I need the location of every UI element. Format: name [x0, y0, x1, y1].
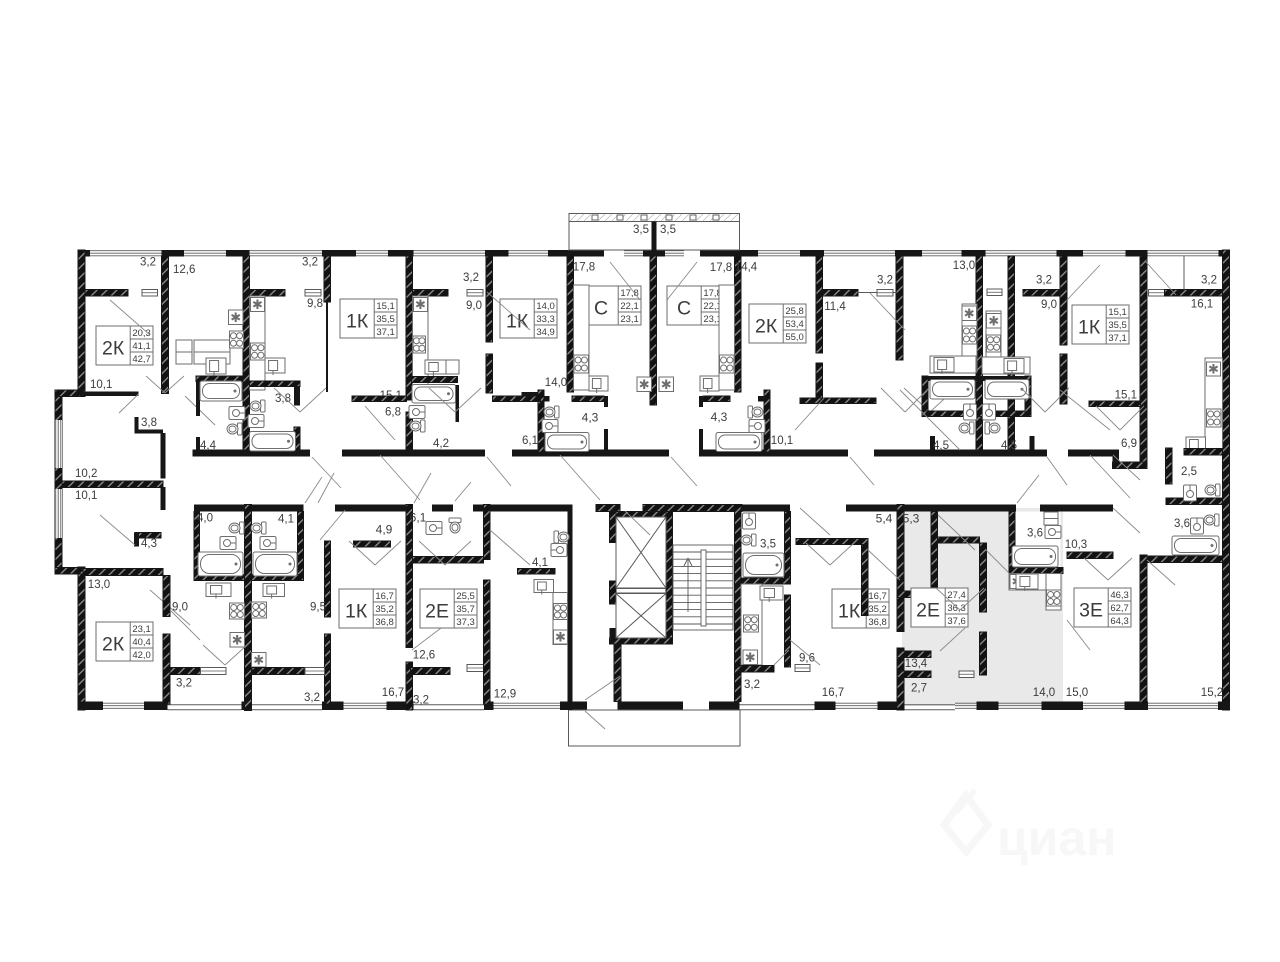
svg-text:25,5: 25,5 — [456, 591, 475, 602]
svg-text:✱: ✱ — [964, 306, 975, 321]
svg-text:3,2: 3,2 — [302, 257, 318, 269]
svg-text:✱: ✱ — [555, 630, 566, 645]
svg-text:1К: 1К — [506, 311, 529, 333]
svg-text:2,5: 2,5 — [1181, 466, 1197, 478]
svg-text:55,0: 55,0 — [785, 332, 804, 343]
svg-text:25,8: 25,8 — [785, 306, 804, 317]
svg-text:2К: 2К — [102, 338, 125, 360]
svg-text:2К: 2К — [102, 634, 125, 656]
svg-text:27,4: 27,4 — [947, 590, 966, 601]
svg-text:3,6: 3,6 — [1027, 528, 1043, 540]
svg-text:✱: ✱ — [253, 652, 264, 667]
svg-text:3,2: 3,2 — [744, 679, 760, 691]
svg-text:3,8: 3,8 — [275, 393, 291, 405]
svg-text:✱: ✱ — [661, 377, 672, 392]
svg-text:3,8: 3,8 — [141, 417, 157, 429]
svg-text:10,1: 10,1 — [771, 435, 793, 447]
svg-text:4,2: 4,2 — [433, 438, 449, 450]
svg-text:✱: ✱ — [639, 377, 650, 392]
svg-text:14,4: 14,4 — [735, 262, 758, 274]
svg-text:16,1: 16,1 — [1191, 299, 1213, 311]
svg-text:3,2: 3,2 — [1201, 275, 1217, 287]
svg-text:2К: 2К — [755, 316, 778, 338]
svg-text:42,0: 42,0 — [132, 650, 151, 661]
svg-text:✱: ✱ — [1208, 362, 1219, 377]
svg-text:34,9: 34,9 — [536, 327, 555, 338]
svg-text:17,8: 17,8 — [710, 262, 732, 274]
svg-text:9,0: 9,0 — [1041, 299, 1057, 311]
svg-text:3,2: 3,2 — [413, 695, 429, 707]
svg-text:С: С — [594, 298, 608, 320]
svg-text:✱: ✱ — [252, 297, 263, 312]
svg-text:62,7: 62,7 — [1110, 603, 1129, 614]
svg-text:✱: ✱ — [232, 632, 243, 647]
svg-text:16,7: 16,7 — [822, 687, 844, 699]
svg-text:5,4: 5,4 — [876, 512, 893, 526]
svg-text:42,7: 42,7 — [132, 354, 151, 365]
svg-text:17,8: 17,8 — [573, 262, 595, 274]
svg-text:35,7: 35,7 — [456, 604, 475, 615]
svg-text:12,6: 12,6 — [413, 650, 435, 662]
svg-text:С: С — [677, 298, 691, 320]
svg-text:6,1: 6,1 — [410, 511, 427, 525]
svg-text:37,6: 37,6 — [947, 616, 966, 627]
svg-text:3,6: 3,6 — [1174, 518, 1190, 530]
svg-text:3,2: 3,2 — [176, 678, 192, 690]
svg-text:16,7: 16,7 — [868, 591, 887, 602]
svg-text:4,3: 4,3 — [141, 538, 157, 550]
svg-text:64,3: 64,3 — [1110, 616, 1129, 627]
svg-text:41,1: 41,1 — [132, 341, 151, 352]
svg-text:46,3: 46,3 — [1110, 590, 1129, 601]
svg-text:5,3: 5,3 — [903, 512, 920, 526]
svg-text:4,5: 4,5 — [933, 440, 949, 452]
svg-text:3Е: 3Е — [1079, 600, 1103, 622]
svg-text:14,0: 14,0 — [545, 377, 567, 389]
svg-text:35,2: 35,2 — [375, 604, 394, 615]
svg-text:15,1: 15,1 — [376, 301, 395, 312]
svg-text:4,3: 4,3 — [582, 411, 599, 425]
svg-text:53,4: 53,4 — [785, 319, 804, 330]
svg-text:✱: ✱ — [988, 313, 999, 328]
svg-text:37,1: 37,1 — [1108, 333, 1127, 344]
svg-text:10,3: 10,3 — [1065, 539, 1087, 551]
svg-text:16,7: 16,7 — [382, 687, 404, 699]
svg-text:6,8: 6,8 — [385, 407, 401, 419]
svg-text:33,3: 33,3 — [536, 314, 555, 325]
svg-text:1К: 1К — [1078, 317, 1101, 339]
svg-text:3,5: 3,5 — [660, 224, 676, 236]
svg-text:циан: циан — [997, 810, 1116, 866]
svg-text:13,0: 13,0 — [88, 579, 110, 591]
svg-text:4,3: 4,3 — [711, 410, 728, 424]
svg-text:15,2: 15,2 — [1201, 687, 1223, 699]
svg-text:13,4: 13,4 — [905, 658, 928, 670]
svg-text:15,1: 15,1 — [1115, 390, 1137, 402]
svg-text:4,1: 4,1 — [278, 514, 294, 526]
svg-text:35,5: 35,5 — [1108, 320, 1127, 331]
svg-text:2Е: 2Е — [425, 601, 449, 623]
svg-text:✱: ✱ — [745, 650, 756, 665]
svg-text:✱: ✱ — [415, 297, 426, 312]
svg-text:12,6: 12,6 — [173, 264, 195, 276]
svg-text:1К: 1К — [838, 601, 861, 623]
svg-text:4,1: 4,1 — [532, 557, 548, 569]
svg-text:4,0: 4,0 — [197, 513, 213, 525]
svg-text:15,1: 15,1 — [1108, 307, 1127, 318]
svg-text:12,9: 12,9 — [494, 689, 516, 701]
svg-text:4,9: 4,9 — [376, 523, 393, 537]
svg-text:17,8: 17,8 — [620, 288, 639, 299]
svg-text:3,5: 3,5 — [760, 539, 776, 551]
svg-text:36,8: 36,8 — [868, 617, 887, 628]
svg-text:3,2: 3,2 — [304, 692, 320, 704]
svg-text:10,2: 10,2 — [75, 468, 97, 480]
svg-text:14,0: 14,0 — [536, 301, 555, 312]
svg-text:36,8: 36,8 — [375, 617, 394, 628]
svg-text:3,2: 3,2 — [877, 275, 893, 287]
svg-text:37,1: 37,1 — [376, 327, 395, 338]
svg-text:23,1: 23,1 — [132, 624, 151, 635]
svg-text:40,4: 40,4 — [132, 637, 151, 648]
svg-text:9,0: 9,0 — [172, 602, 188, 614]
svg-text:1К: 1К — [346, 311, 369, 333]
svg-text:16,7: 16,7 — [375, 591, 394, 602]
svg-text:22,1: 22,1 — [620, 301, 639, 312]
svg-text:2,7: 2,7 — [911, 683, 927, 695]
svg-text:35,5: 35,5 — [376, 314, 395, 325]
svg-text:9,0: 9,0 — [466, 300, 482, 312]
svg-text:23,1: 23,1 — [620, 314, 639, 325]
svg-text:3,2: 3,2 — [1036, 275, 1052, 287]
svg-text:35,2: 35,2 — [868, 604, 887, 615]
svg-text:4,4: 4,4 — [200, 440, 217, 452]
svg-text:✱: ✱ — [230, 310, 241, 325]
svg-text:2Е: 2Е — [916, 600, 940, 622]
svg-text:6,1: 6,1 — [522, 435, 538, 447]
svg-text:14,0: 14,0 — [1033, 687, 1055, 699]
svg-text:10,1: 10,1 — [90, 379, 112, 391]
svg-text:37,3: 37,3 — [456, 617, 475, 628]
svg-text:1К: 1К — [345, 601, 368, 623]
svg-text:4,5: 4,5 — [1001, 440, 1017, 452]
svg-text:9,8: 9,8 — [307, 298, 323, 310]
svg-text:15,0: 15,0 — [1066, 687, 1088, 699]
svg-text:36,3: 36,3 — [947, 603, 966, 614]
svg-text:3,2: 3,2 — [463, 272, 479, 284]
svg-text:11,4: 11,4 — [824, 301, 846, 313]
svg-text:3,5: 3,5 — [633, 224, 649, 236]
svg-text:3,2: 3,2 — [140, 257, 156, 269]
svg-text:6,9: 6,9 — [1121, 438, 1137, 450]
svg-text:9,5: 9,5 — [310, 602, 326, 614]
svg-text:13,0: 13,0 — [953, 260, 975, 272]
svg-text:10,1: 10,1 — [75, 490, 97, 502]
